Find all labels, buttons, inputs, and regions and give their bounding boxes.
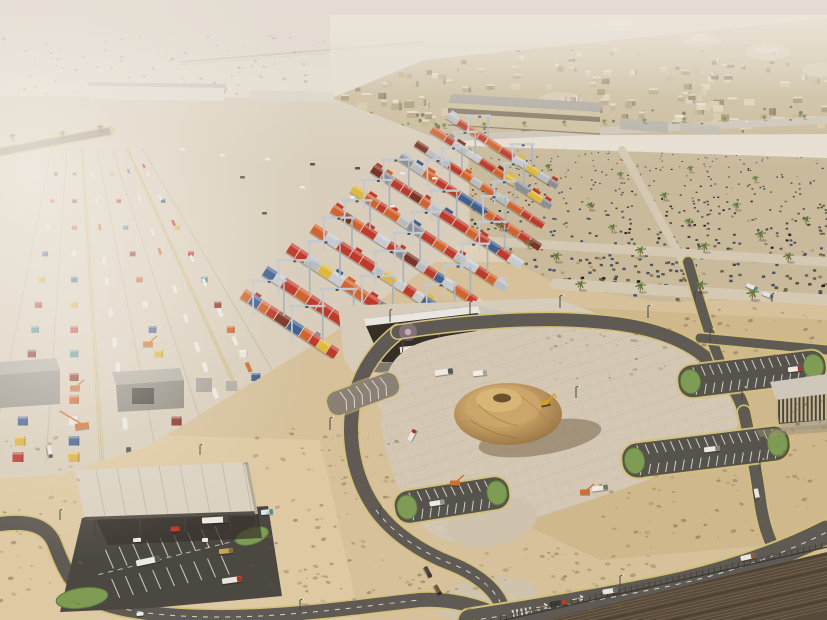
yard-cargo [763,188,765,190]
yard-cargo [751,188,753,190]
yard-cargo [661,273,665,276]
yard-cargo [580,240,583,242]
yard-cargo [627,242,630,244]
yard-cargo [630,223,633,225]
yard-cargo [637,271,641,274]
fence-post [619,589,620,595]
yard-cargo [675,261,678,264]
yard-cargo [678,212,681,214]
yard-cargo [813,277,817,280]
yard-cargo [579,208,581,210]
fence-post [500,616,501,620]
sand-speckle [638,532,641,534]
yard-cargo [472,189,474,191]
yard-cargo [818,226,821,228]
yard-cargo [684,185,686,186]
yard-cargo [474,223,477,225]
yard-cargo [703,202,705,204]
yard-cargo [669,269,672,271]
yard-cargo [629,218,632,220]
yard-cargo [795,220,798,222]
yard-cargo [796,176,798,177]
yard-cargo [637,280,640,283]
yard-cargo [730,248,733,250]
fence-post [643,583,644,589]
yard-cargo [612,268,615,271]
yard-cargo [722,209,724,211]
fence-post [797,548,798,554]
yard-cargo [804,253,807,255]
yard-cargo [656,270,659,272]
yard-cargo [565,203,567,205]
yard-cargo [766,228,769,230]
yard-cargo [621,211,623,213]
yard-cargo [537,188,539,190]
yard-cargo [805,274,809,277]
yard-cargo [628,232,631,234]
yard-cargo [656,241,659,243]
yard-cargo [791,218,794,220]
fence-post [649,582,650,588]
yard-cargo [808,283,812,286]
truck [202,538,208,544]
yard-cargo [590,188,592,190]
yard-cargo [636,257,639,259]
yard-cargo [516,197,518,199]
yard-cargo [611,202,613,204]
yard-cargo [731,216,733,218]
yard-cargo [691,221,694,223]
yard-cargo [565,176,567,177]
yard-cargo [561,272,564,274]
yard-cargo [775,286,779,289]
yard-cargo [717,242,720,244]
yard-cargo [565,226,568,228]
fence-post [821,543,822,549]
apron-vehicle [432,177,437,180]
yard-cargo [653,180,655,182]
yard-cargo [552,218,555,220]
fence-post [595,594,596,600]
yard-cargo [819,253,822,255]
yard-cargo [634,265,637,267]
yard-cargo [590,266,593,268]
yard-cargo [680,269,683,272]
yard-cargo [822,233,825,235]
yard-cargo [697,210,699,212]
yard-cargo [499,210,501,212]
yard-cargo [817,207,819,209]
fence-post [791,550,792,556]
sand-speckle [321,576,323,577]
yard-cargo [638,258,641,260]
fence-post [577,598,578,604]
yard-cargo [663,243,666,245]
fence-post [726,564,727,570]
yard-cargo [706,214,708,216]
yard-cargo [771,247,774,249]
fence-post [696,571,697,577]
yard-cargo [717,197,719,199]
yard-cargo [784,288,788,291]
yard-cargo [785,201,787,203]
yard-cargo [694,207,696,209]
yard-cargo [495,188,497,189]
yard-cargo [531,201,533,203]
yard-cargo [762,275,766,278]
yard-cargo [757,229,760,231]
yard-cargo [620,231,623,233]
yard-cargo [786,239,789,241]
mound-crater [493,394,511,403]
yard-cargo [665,262,668,265]
yard-cargo [615,208,617,210]
yard-cargo [472,195,474,196]
yard-cargo [656,233,659,235]
yard-cargo [810,183,812,184]
fence-post [732,563,733,569]
yard-cargo [563,223,566,225]
yard-cargo [552,269,555,272]
truck [136,612,143,617]
lens-flare [399,323,417,341]
fence-post [714,567,715,573]
yard-cargo [581,177,583,178]
fence-post [672,576,673,582]
yard-cargo [622,192,624,194]
yard-cargo [600,264,603,267]
yard-cargo [621,182,623,183]
yard-cargo [772,272,775,274]
yard-cargo [631,205,633,207]
yard-cargo [683,210,685,212]
yard-cargo [769,251,772,253]
fence-post [815,544,816,550]
yard-cargo [738,183,740,184]
yard-cargo [780,248,783,250]
sand-speckle [672,491,675,493]
fence-post [809,546,810,552]
yard-cargo [681,225,684,227]
yard-cargo [475,193,477,194]
yard-cargo [801,251,804,253]
yard-cargo [553,230,556,232]
yard-cargo [509,191,511,193]
yard-cargo [695,239,698,241]
yard-cargo [696,192,698,194]
yard-cargo [627,179,629,180]
yard-cargo [565,172,567,173]
yard-cargo [679,279,683,282]
sand-speckle [789,410,794,413]
yard-cargo [594,182,596,183]
sand-speckle [559,602,565,605]
yard-cargo [494,227,497,229]
yard-cargo [552,234,555,236]
yard-cargo [819,229,822,231]
fence-post [506,614,507,620]
yard-cargo [535,183,537,185]
yard-cargo [760,187,762,189]
yard-cargo [650,264,653,266]
yard-cargo [700,186,702,187]
fence-post [773,554,774,560]
yard-cargo [576,262,579,265]
yard-cargo [813,180,815,182]
yard-cargo [608,254,611,256]
yard-cargo [624,232,627,234]
yard-cargo [487,228,490,230]
sand-speckle [503,568,509,572]
fence-post [601,593,602,599]
yard-cargo [693,203,695,205]
fence-post [785,551,786,557]
yard-cargo [786,222,789,224]
yard-cargo [819,204,821,206]
yard-cargo [529,184,531,186]
yard-cargo [763,186,765,187]
yard-cargo [666,211,668,213]
yard-cargo [593,184,595,185]
yard-cargo [799,193,801,195]
yard-cargo [818,276,821,279]
yard-cargo [811,249,814,251]
yard-cargo [476,227,479,229]
yard-cargo [571,236,574,238]
fence-post [684,574,685,580]
yard-cargo [793,196,795,198]
yard-cargo [579,259,582,261]
yard-cargo [718,228,721,230]
yard-cargo [780,206,782,208]
yard-cargo [793,241,796,243]
yard-cargo [707,204,709,206]
yard-cargo [733,264,736,266]
yard-cargo [528,185,530,186]
yard-cargo [659,231,662,233]
yard-cargo [649,170,651,171]
yard-cargo [615,262,618,265]
sand-speckle [604,503,605,504]
sand-speckle [575,571,580,574]
yard-cargo [703,225,706,227]
fence-post [548,605,549,611]
yard-cargo [733,242,736,244]
yard-cargo [813,269,816,272]
yard-cargo [627,175,629,176]
yard-cargo [588,262,591,265]
yard-cargo [588,218,590,220]
yard-cargo [747,185,749,186]
yard-cargo [541,273,544,275]
yard-cargo [713,197,715,199]
yard-cargo [769,209,771,211]
yard-cargo [585,259,588,261]
apron-vehicle [390,205,395,208]
yard-cargo [626,279,630,282]
yard-cargo [610,264,613,267]
yard-cargo [570,188,572,189]
fence-post [524,610,525,616]
yard-cargo [749,184,751,185]
yard-cargo [702,272,705,275]
yard-cargo [554,218,556,220]
yard-cargo [528,204,530,206]
fence-post [536,607,537,613]
yard-cargo [720,270,724,273]
yard-cargo [798,183,800,185]
fence-post [690,572,691,578]
fence-post [768,555,769,561]
yard-cargo [623,182,625,183]
apron-vehicle [400,172,405,175]
yard-cargo [470,219,473,221]
yard-cargo [520,220,523,222]
yard-cargo [738,274,741,277]
yard-cargo [529,175,531,176]
yard-cargo [714,183,716,184]
yard-cargo [631,255,634,257]
sand-speckle [781,312,784,314]
yard-cargo [525,200,527,202]
yard-cargo [692,200,694,202]
yard-cargo [770,191,772,193]
fence-post [589,595,590,601]
yard-cargo [680,194,682,195]
fence-post [762,556,763,562]
yard-cargo [690,179,692,180]
yard-cargo [705,228,708,230]
fence-post [631,586,632,592]
yard-cargo [591,179,593,180]
yard-cargo [541,170,543,171]
yard-cargo [789,277,793,280]
fence-post [666,578,667,584]
yard-cargo [657,275,660,278]
yard-cargo [728,176,730,177]
yard-cargo [734,212,736,214]
yard-cargo [775,264,778,266]
fence-post [637,585,638,591]
yard-cargo [726,193,728,195]
fence-post [571,599,572,605]
yard-cargo [790,244,793,246]
yard-cargo [732,188,734,189]
yard-cargo [701,216,704,218]
yard-cargo [567,210,569,212]
yard-cargo [600,258,603,260]
yard-cargo [697,243,700,245]
yard-cargo [622,268,625,270]
yard-cargo [596,257,599,259]
yard-cargo [776,235,779,237]
yard-cargo [765,243,768,245]
yard-cargo [581,201,583,203]
yard-cargo [470,194,472,196]
yard-cargo [740,171,742,172]
yard-cargo [631,191,633,193]
yard-cargo [563,198,565,200]
yard-cargo [548,268,551,271]
yard-cargo [599,278,603,281]
yard-cargo [633,243,636,245]
yard-cargo [708,176,710,177]
fence-post [708,568,709,574]
yard-cargo [729,275,733,278]
yard-cargo [698,199,700,201]
yard-cargo [635,194,637,195]
yard-cargo [588,271,591,273]
yard-cargo [692,197,694,199]
yard-cargo [607,214,609,216]
yard-cargo [670,206,672,208]
yard-cargo [615,190,617,192]
yard-cargo [710,179,712,180]
yard-cargo [619,188,621,189]
yard-cargo [581,276,585,279]
yard-cargo [604,210,606,212]
yard-cargo [622,217,624,219]
yard-cargo [729,280,733,283]
yard-cargo [490,198,492,200]
fence-post [530,609,531,615]
yard-cargo [820,207,822,209]
yard-cargo [595,170,597,171]
yard-cargo [535,265,538,267]
yard-cargo [630,238,633,240]
yard-cargo [614,278,618,281]
yard-cargo [754,193,756,195]
colonnade-columns [777,394,826,423]
yard-cargo [799,188,801,190]
yard-cargo [751,219,753,221]
yard-cargo [518,174,520,175]
yard-cargo [589,232,592,234]
fence-post [655,581,656,587]
yard-cargo [803,208,805,210]
yard-cargo [706,171,708,172]
yard-cargo [669,222,672,224]
yard-cargo [558,192,560,194]
yard-cargo [471,226,474,228]
yard-cargo [543,217,545,219]
yard-cargo [601,171,603,172]
yard-cargo [785,275,789,278]
yard-cargo [781,174,783,175]
yard-cargo [561,191,563,193]
yard-cargo [615,275,618,278]
yard-cargo [820,247,823,249]
yard-cargo [822,254,825,257]
yard-cargo [788,234,791,236]
yard-cargo [770,227,773,229]
fence-post [738,562,739,568]
yard-cargo [707,222,710,224]
yard-cargo [738,242,741,244]
yard-cargo [785,228,788,230]
yard-cargo [710,209,712,211]
yard-cargo [671,263,674,266]
yard-cargo [713,245,716,247]
yard-cargo [754,218,757,220]
yard-cargo [782,176,784,177]
yard-cargo [795,282,799,285]
yard-cargo [797,213,799,215]
yard-cargo [620,194,622,196]
yard-cargo [688,236,691,238]
yard-cargo [686,175,688,176]
yard-cargo [771,284,775,287]
